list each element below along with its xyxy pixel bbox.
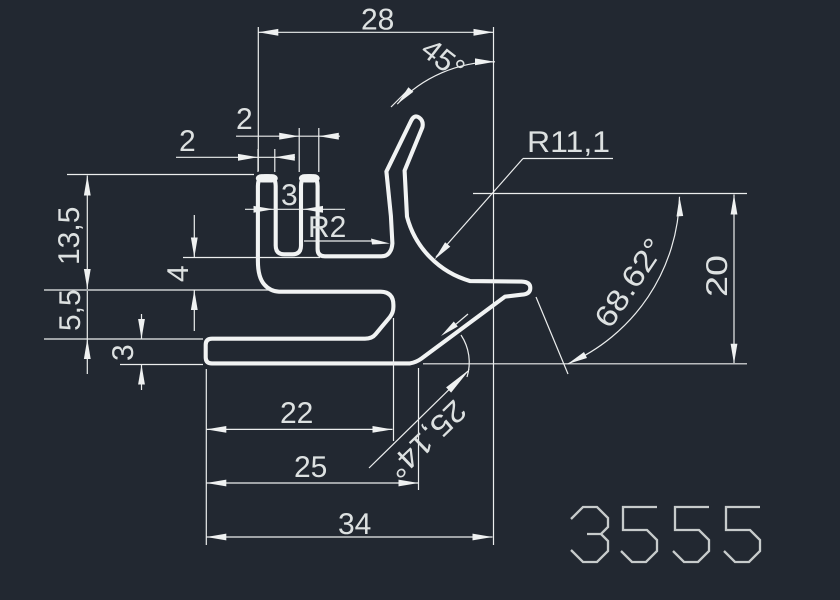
svg-text:20: 20 (701, 255, 734, 297)
svg-text:4: 4 (162, 265, 195, 282)
svg-text:R2: R2 (308, 211, 346, 244)
svg-text:13,5: 13,5 (53, 207, 86, 265)
svg-text:28: 28 (361, 4, 394, 37)
svg-text:2: 2 (179, 125, 196, 158)
svg-text:3: 3 (281, 179, 298, 212)
svg-text:R11,1: R11,1 (527, 126, 610, 159)
svg-text:5,5: 5,5 (54, 289, 87, 331)
svg-text:3: 3 (107, 344, 140, 361)
svg-text:2: 2 (236, 103, 253, 136)
svg-text:34: 34 (338, 508, 371, 541)
svg-text:22: 22 (280, 397, 313, 430)
svg-text:25: 25 (294, 451, 327, 484)
